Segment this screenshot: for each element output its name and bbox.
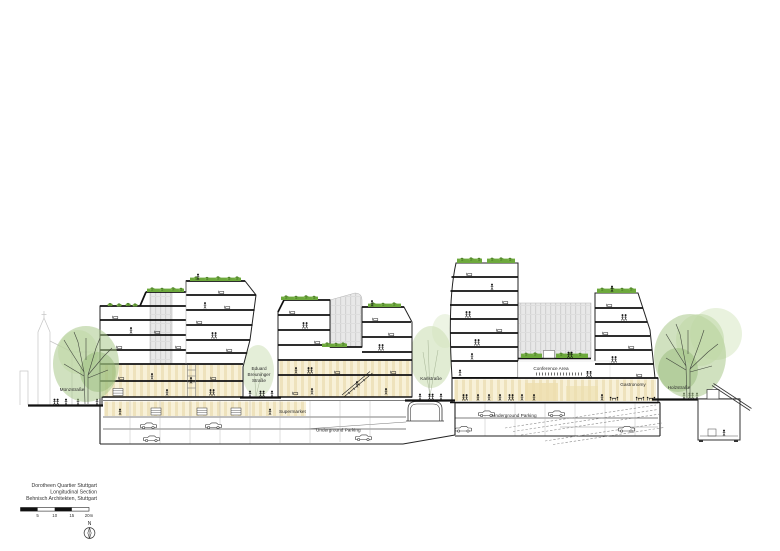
building-a-core (150, 292, 172, 364)
building-c-backdrop (518, 303, 591, 358)
scale-tick-20m: 20m (85, 513, 94, 518)
title-project: Dorotheen Quartier Stuttgart (32, 483, 98, 489)
title-drawing-type: Longitudinal Section (50, 490, 97, 496)
title-firm: Behnisch Architekten, Stuttgart (26, 496, 97, 502)
label-gastronomy: Gastronomy (620, 382, 646, 387)
architectural-sheet: Münzstraße Eduard Breuninger Straße Supe… (0, 0, 780, 551)
label-holzstrasse: Holzstraße (668, 385, 691, 390)
paper-background (0, 0, 780, 551)
label-karlstrasse: Karlstraße (420, 376, 442, 381)
label-eduard-3: Straße (252, 378, 266, 383)
label-munzstrasse: Münzstraße (60, 387, 85, 392)
scale-tick-10: 10 (52, 513, 57, 518)
building-b-retail (279, 361, 411, 397)
label-eduard-1: Eduard (251, 366, 267, 371)
label-underground-parking-left: Underground Parking (316, 428, 361, 433)
north-label: N (88, 521, 92, 527)
section-drawing: Münzstraße Eduard Breuninger Straße Supe… (0, 0, 780, 551)
label-underground-parking-right: Underground Parking (492, 413, 537, 418)
label-eduard-2: Breuninger (248, 372, 271, 377)
label-conference-area: Conference Area (533, 366, 569, 371)
building-b-core (330, 293, 362, 349)
scale-tick-15: 15 (69, 513, 74, 518)
building-b (278, 293, 412, 397)
label-supermarket: Supermarket (279, 409, 307, 414)
